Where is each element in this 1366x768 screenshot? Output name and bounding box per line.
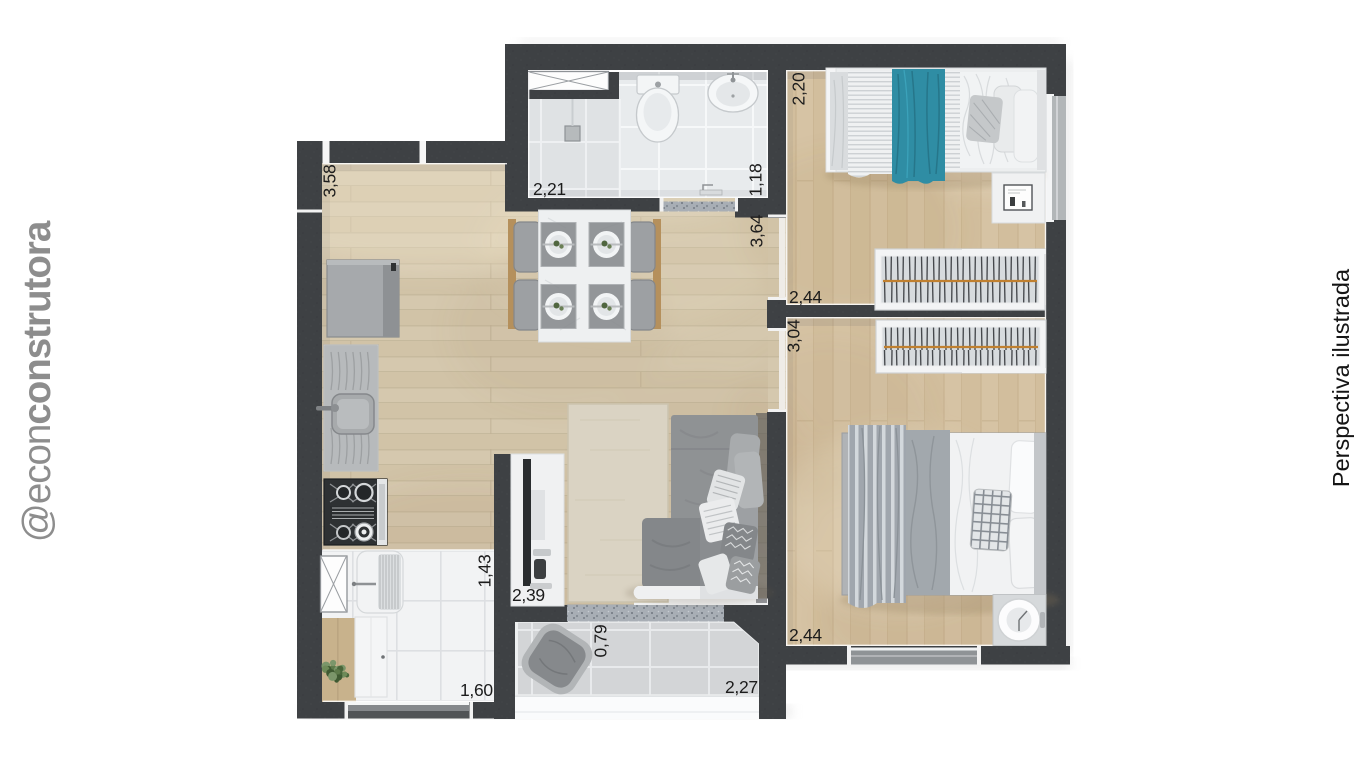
svg-text:1,43: 1,43 [475,555,495,588]
svg-text:@econconstrutora: @econconstrutora [16,220,59,542]
svg-text:2,39: 2,39 [512,585,545,605]
svg-text:1,18: 1,18 [746,164,766,197]
svg-text:0,79: 0,79 [591,625,611,658]
svg-text:2,44: 2,44 [789,287,822,307]
svg-text:3,04: 3,04 [784,319,804,352]
svg-text:3,64: 3,64 [747,214,767,247]
svg-text:2,21: 2,21 [533,179,566,199]
svg-text:2,27: 2,27 [725,677,758,697]
svg-text:2,44: 2,44 [789,625,822,645]
svg-text:3,58: 3,58 [320,165,340,198]
svg-text:Perspectiva ilustrada: Perspectiva ilustrada [1328,268,1354,487]
svg-text:1,60: 1,60 [460,680,493,700]
svg-text:2,20: 2,20 [789,72,809,105]
